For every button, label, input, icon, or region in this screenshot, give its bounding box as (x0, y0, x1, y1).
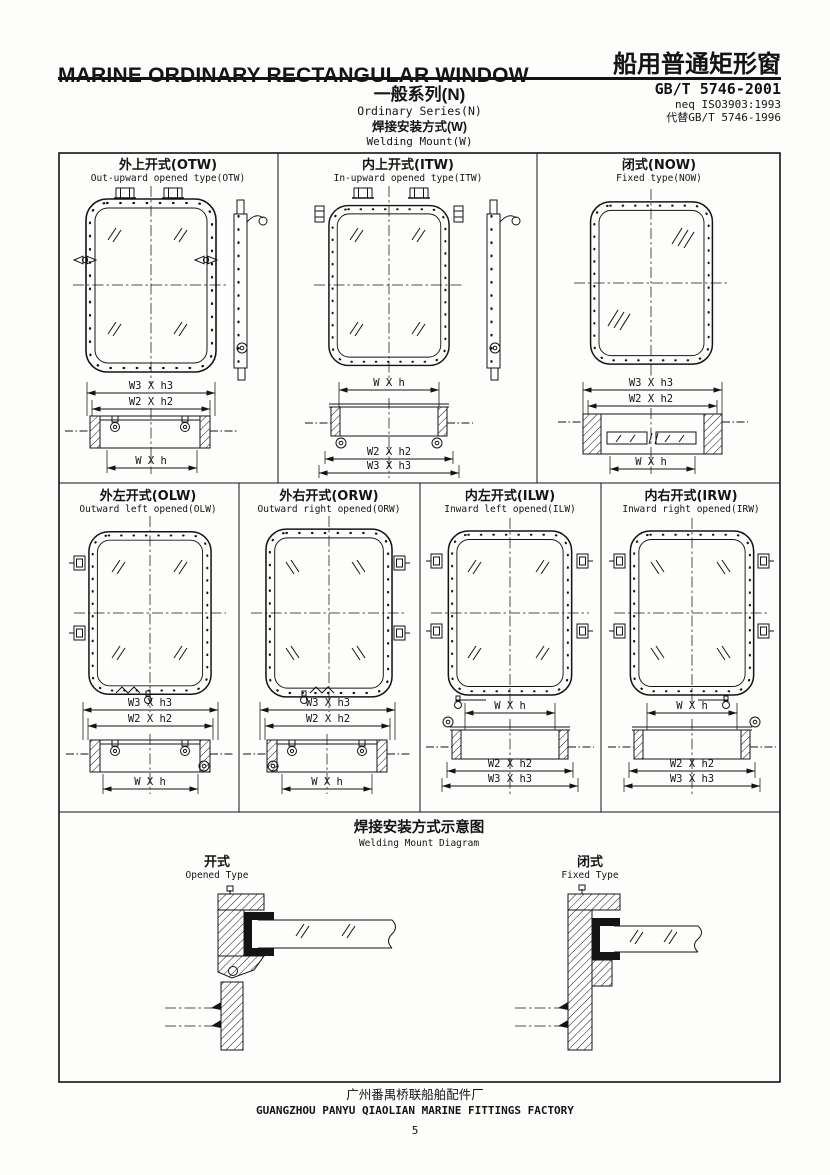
welding-title-zh: 焊接安装方式示意图 (354, 818, 485, 836)
footer: 广州番禺桥联船舶配件厂 GUANGZHOU PANYU QIAOLIAN MAR… (0, 1088, 830, 1117)
page-number: 5 (0, 1124, 830, 1137)
panel-now-front-view (574, 189, 728, 378)
panel-olw-front-view (69, 516, 226, 712)
mount-label-zh: 焊接安装方式(W) (58, 120, 781, 135)
panel-olw-title-en: Outward left opened(OLW) (79, 504, 216, 515)
opened-type-label-en: Opened Type (186, 870, 249, 881)
panel-now: 闭式(NOW) Fixed type(NOW) W3 X h3 W2 X h2 (558, 157, 748, 474)
panel-orw-section-view: W3 X h3 W2 X h2 W X h (243, 697, 411, 794)
panel-irw: 内右开式(IRW) Inward right opened(IRW) W X h (608, 488, 776, 794)
factory-name-zh: 广州番禺桥联船舶配件厂 (0, 1088, 830, 1104)
diagram-table: 外上开式(OTW) Out-upward opened type(OTW) W3… (58, 152, 781, 1083)
panel-itw-title-zh: 内上开式(ITW) (362, 157, 454, 173)
panel-irw-title-zh: 内右开式(IRW) (644, 488, 737, 504)
dim-label: W X h (135, 455, 167, 467)
panel-orw-front-view (251, 516, 410, 712)
panel-otw: 外上开式(OTW) Out-upward opened type(OTW) W3… (65, 157, 267, 474)
fixed-type-label-en: Fixed Type (561, 870, 618, 881)
panel-now-section-view: W3 X h3 W2 X h2 W X h (558, 377, 748, 474)
panel-ilw: 内左开式(ILW) Inward left opened(ILW) W X h (426, 488, 594, 794)
opened-type-label-zh: 开式 (204, 854, 230, 870)
table-grid (59, 153, 780, 1082)
panel-itw-side-view (487, 200, 520, 380)
factory-name-en: GUANGZHOU PANYU QIAOLIAN MARINE FITTINGS… (0, 1104, 830, 1118)
panel-itw: 内上开式(ITW) In-upward opened type(ITW) W X… (305, 157, 520, 478)
welding-title-en: Welding Mount Diagram (359, 838, 479, 849)
fixed-type-label-zh: 闭式 (577, 854, 603, 870)
dim-label: W X h (635, 456, 667, 468)
dim-label: W X h (134, 776, 166, 788)
welding-diagram-fixed (515, 885, 702, 1050)
standard-code: GB/T 5746-2001 (655, 80, 781, 98)
panel-otw-title-zh: 外上开式(OTW) (118, 157, 217, 173)
dim-label: W2 X h2 (367, 446, 411, 458)
panel-orw-title-en: Outward right opened(ORW) (258, 504, 401, 515)
welding-mount-section: 焊接安装方式示意图 Welding Mount Diagram 开式 Opene… (165, 818, 702, 1050)
panel-itw-front-view (314, 186, 464, 384)
dim-label: W2 X h2 (488, 758, 532, 770)
standard-neq: neq ISO3903:1993 (655, 98, 781, 111)
panel-olw-title-zh: 外左开式(OLW) (99, 488, 197, 504)
dim-label: W3 X h3 (306, 697, 350, 709)
dim-label: W3 X h3 (488, 773, 532, 785)
mount-label-en: Welding Mount(W) (58, 135, 781, 148)
panel-irw-title-en: Inward right opened(IRW) (622, 504, 759, 515)
panel-ilw-title-en: Inward left opened(ILW) (444, 504, 576, 515)
panel-otw-side-view (234, 200, 267, 380)
document-page: MARINE ORDINARY RECTANGULAR WINDOW 船用普通矩… (0, 0, 830, 1175)
dim-label: W X h (373, 377, 405, 389)
dim-label: W3 X h3 (367, 460, 411, 472)
dim-label: W X h (311, 776, 343, 788)
welding-diagram-opened (165, 886, 396, 1050)
panel-now-title-zh: 闭式(NOW) (622, 157, 696, 173)
panel-ilw-front-view (426, 518, 593, 709)
panel-now-title-en: Fixed type(NOW) (616, 173, 702, 184)
panel-itw-title-en: In-upward opened type(ITW) (334, 173, 483, 184)
dim-label: W2 X h2 (129, 396, 173, 408)
dim-label: W2 X h2 (128, 713, 172, 725)
dim-label: W3 X h3 (629, 377, 673, 389)
standard-block: GB/T 5746-2001 neq ISO3903:1993 代替GB/T 5… (655, 80, 781, 124)
panel-otw-title-en: Out-upward opened type(OTW) (91, 173, 245, 184)
page-title-chinese: 船用普通矩形窗 (613, 44, 781, 79)
panel-irw-front-view (609, 518, 774, 709)
panel-otw-section-view: W3 X h3 W2 X h2 W X h (65, 380, 237, 474)
mount-heading: 焊接安装方式(W) Welding Mount(W) (58, 120, 781, 148)
dim-label: W3 X h3 (129, 380, 173, 392)
panel-ilw-section-view: W X h W2 X h2 W3 X h3 (426, 700, 594, 794)
panel-irw-section-view: W X h W2 X h2 W3 X h3 (608, 700, 776, 794)
dim-label: W2 X h2 (629, 393, 673, 405)
panel-itw-section-view: W X h W2 X h2 W3 X h3 (305, 377, 473, 478)
dim-label: W2 X h2 (306, 713, 350, 725)
panel-orw-title-zh: 外右开式(ORW) (278, 488, 378, 504)
dim-label: W X h (494, 700, 526, 712)
panel-orw: 外右开式(ORW) Outward right opened(ORW) W3 X… (243, 488, 411, 794)
dim-label: W X h (676, 700, 708, 712)
dim-label: W2 X h2 (670, 758, 714, 770)
dim-label: W3 X h3 (670, 773, 714, 785)
panel-otw-front-view (73, 186, 229, 384)
panel-olw: 外左开式(OLW) Outward left opened(OLW) W3 X … (66, 488, 234, 794)
dim-label: W3 X h3 (128, 697, 172, 709)
panel-ilw-title-zh: 内左开式(ILW) (465, 488, 555, 504)
